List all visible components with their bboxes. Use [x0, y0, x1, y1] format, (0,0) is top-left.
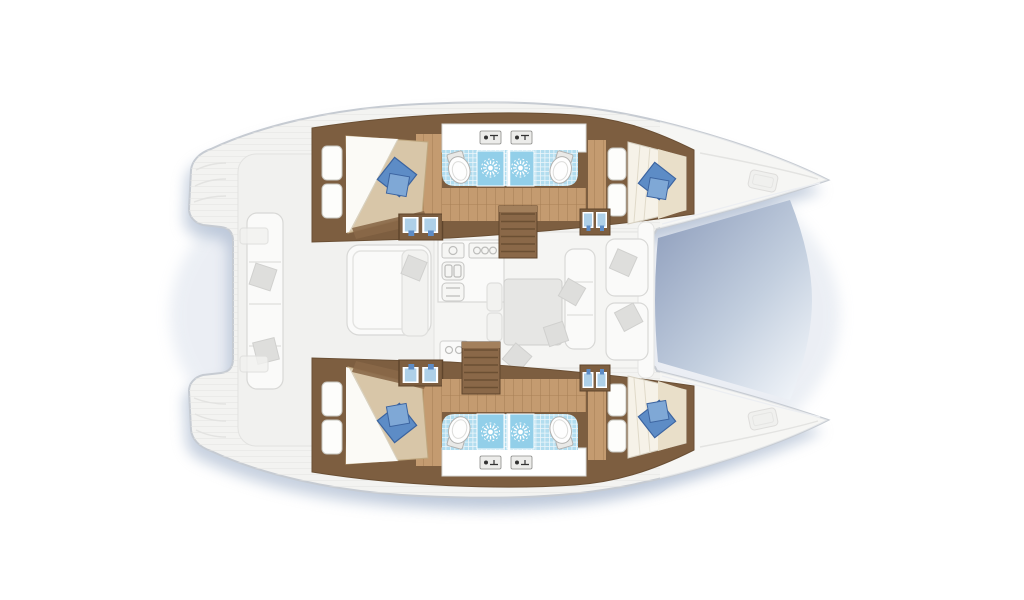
galley-sink [442, 243, 464, 258]
transom-winch-bottom [240, 356, 268, 372]
pillow [322, 146, 342, 180]
transom-winch-top [240, 228, 268, 244]
faucet-icon [480, 131, 501, 144]
faucet-icon [511, 131, 532, 144]
pillow [608, 148, 626, 180]
pillow [322, 184, 342, 218]
boat [170, 95, 840, 510]
oven [442, 283, 464, 301]
cabin-lockers [580, 209, 610, 235]
stairs-top [499, 206, 537, 258]
catamaran-plan-image [0, 0, 1024, 600]
pillow [608, 184, 626, 216]
floor-plan-svg [0, 0, 1024, 600]
stairs-bottom [462, 342, 500, 394]
cabin-lockers [399, 214, 443, 240]
